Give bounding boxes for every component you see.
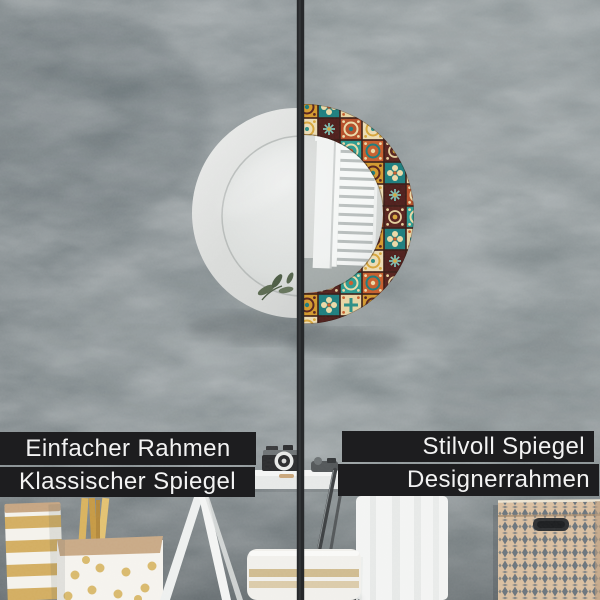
caption-left-top: Einfacher Rahmen (0, 432, 256, 465)
caption-right-bottom: Designerrahmen (338, 464, 599, 496)
scene-photo (0, 0, 600, 600)
product-comparison-photo: Einfacher Rahmen Klassischer Spiegel Sti… (0, 0, 600, 600)
split-divider (297, 0, 304, 600)
caption-left-bottom: Klassischer Spiegel (0, 467, 255, 497)
caption-right-top: Stilvoll Spiegel (342, 431, 594, 462)
